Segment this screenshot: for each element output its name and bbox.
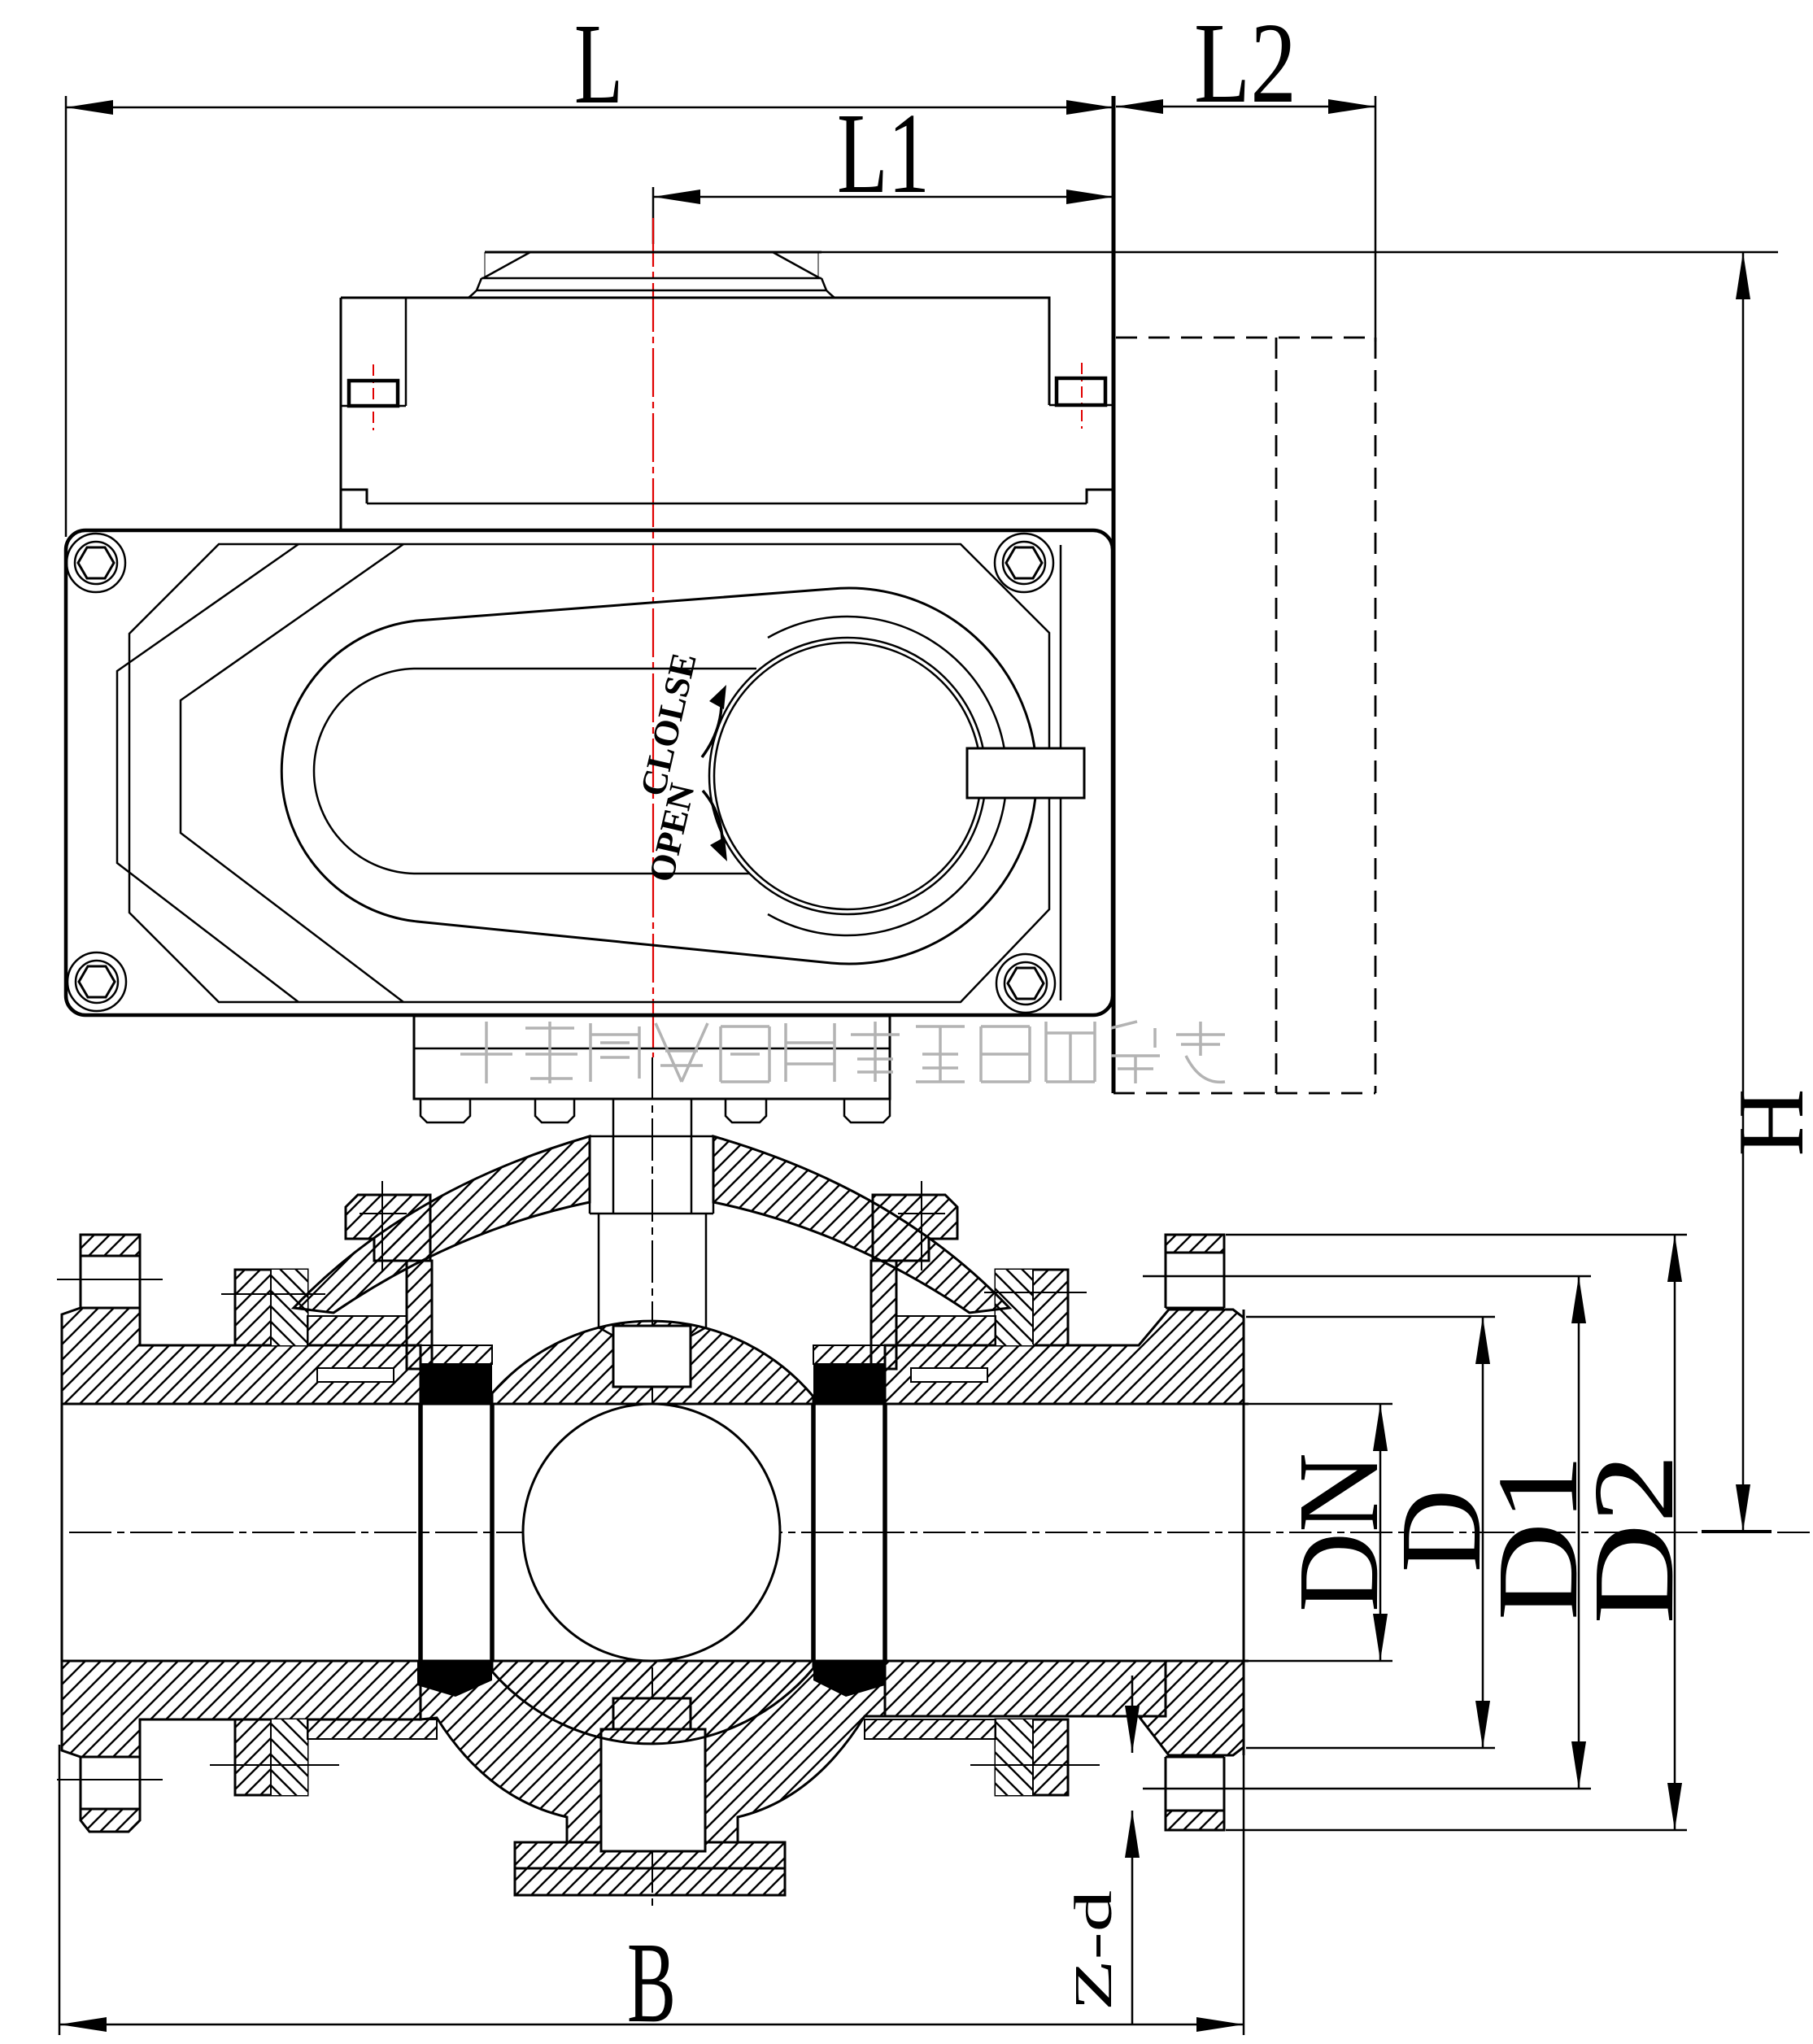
svg-text:L: L (574, 0, 623, 128)
svg-text:B: B (627, 1918, 676, 2044)
svg-text:L1: L1 (837, 89, 930, 217)
svg-text:L2: L2 (1194, 0, 1297, 127)
svg-text:Z-d: Z-d (1064, 1890, 1123, 2011)
svg-text:H: H (1719, 1088, 1813, 1156)
svg-text:D2: D2 (1569, 1453, 1698, 1624)
